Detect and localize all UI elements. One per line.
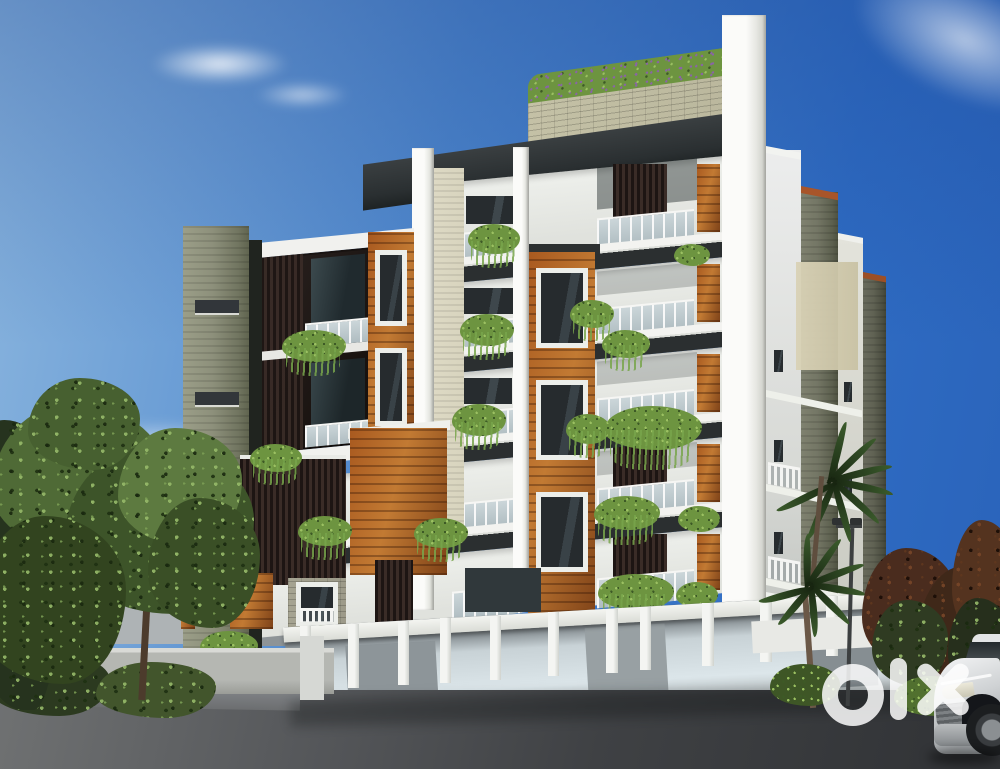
white-fin bbox=[513, 147, 529, 610]
balcony-plants bbox=[414, 518, 468, 548]
wood-panel-window bbox=[375, 348, 407, 426]
render-scene: olx bbox=[0, 0, 1000, 769]
balcony-void bbox=[465, 568, 541, 612]
olx-logo: olx bbox=[816, 648, 992, 740]
street-lamp-head bbox=[850, 518, 862, 525]
right-step-wall bbox=[766, 150, 801, 612]
olx-letter-l bbox=[890, 658, 907, 720]
balcony-plants bbox=[594, 496, 660, 530]
pier-rail bbox=[300, 608, 334, 622]
stilt-column bbox=[490, 616, 501, 680]
wood-slat-screen bbox=[375, 560, 413, 624]
car-shadow bbox=[928, 750, 1000, 764]
shrub bbox=[96, 662, 216, 718]
window bbox=[458, 378, 512, 404]
olx-logo-text: olx bbox=[816, 648, 817, 649]
stilt-column bbox=[348, 624, 359, 688]
balcony-plants bbox=[250, 444, 302, 472]
balcony-door bbox=[697, 164, 720, 232]
balcony-plants bbox=[570, 300, 614, 328]
stilt-column bbox=[440, 618, 451, 683]
wood-panel-window bbox=[375, 250, 407, 326]
olive-wall-window bbox=[195, 300, 239, 313]
right-window bbox=[844, 382, 852, 402]
stilt-column bbox=[640, 607, 651, 670]
balcony-door bbox=[697, 354, 720, 412]
balcony-door bbox=[697, 264, 720, 322]
olx-letter-o bbox=[822, 664, 884, 726]
balcony-plants bbox=[678, 506, 720, 532]
stilt-column bbox=[398, 621, 409, 685]
balcony-plants bbox=[452, 404, 506, 436]
balcony-door bbox=[697, 444, 720, 502]
cloud bbox=[255, 82, 350, 108]
right-window bbox=[774, 440, 783, 462]
balcony-plants bbox=[298, 516, 352, 546]
tree-canopy bbox=[148, 498, 260, 628]
stilt-column bbox=[702, 603, 714, 666]
corner-fin bbox=[722, 15, 766, 612]
olive-wall-window bbox=[195, 392, 239, 405]
right-window bbox=[774, 350, 783, 372]
stilt-column bbox=[606, 609, 618, 673]
right-window bbox=[774, 532, 783, 554]
balcony-plants bbox=[604, 406, 702, 450]
tree-canopy bbox=[28, 378, 140, 470]
gate-pillar bbox=[300, 636, 324, 700]
tower-window bbox=[536, 492, 588, 572]
balcony-plants bbox=[282, 330, 346, 362]
balcony-plants bbox=[566, 414, 610, 444]
cloud bbox=[150, 44, 290, 84]
balcony-plants bbox=[460, 314, 514, 346]
olx-letter-x bbox=[910, 656, 976, 722]
window bbox=[466, 196, 516, 224]
balcony-plants bbox=[468, 224, 520, 254]
stilt-column bbox=[548, 612, 559, 676]
window bbox=[462, 288, 514, 314]
balcony-plants bbox=[674, 244, 710, 266]
right-beige-band bbox=[796, 262, 858, 370]
